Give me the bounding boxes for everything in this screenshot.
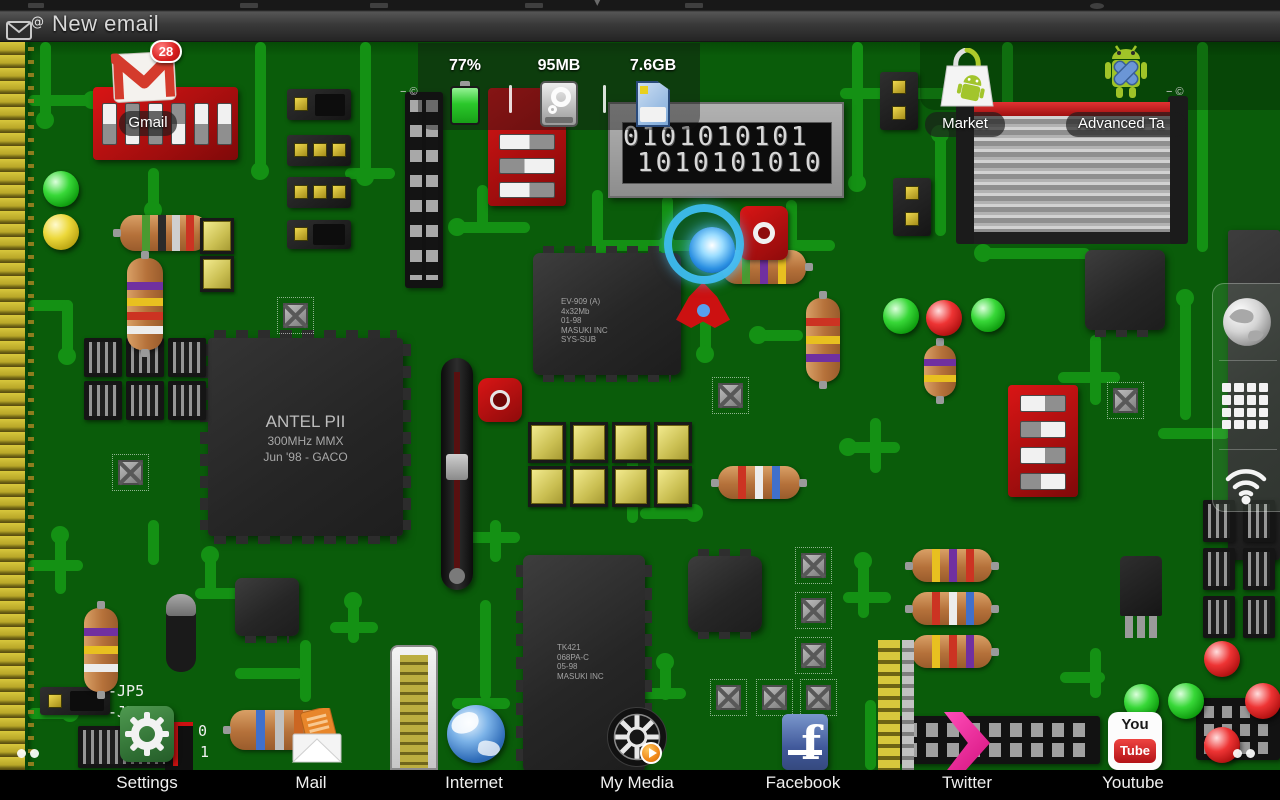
dock-label-youtube[interactable]: Youtube [1063,773,1203,793]
app-grid-cell [1234,420,1243,429]
app-drawer-icon[interactable] [1222,383,1268,429]
gmail-label: Gmail [119,111,177,136]
quick-launch-sidebar [1212,283,1280,512]
facebook-bar [788,750,822,755]
battery-icon [450,81,480,125]
page-indicator-dot [1233,749,1242,758]
dock-label-my-media[interactable]: My Media [567,773,707,793]
media-play-badge [640,742,662,764]
dock-icon-settings[interactable] [120,706,174,762]
app-grid-cell [1222,395,1231,404]
app-grid-cell [1259,420,1268,429]
app-grid-cell [1259,408,1268,417]
dock-label-twitter[interactable]: Twitter [897,773,1037,793]
storage-value: 7.6GB [606,57,700,75]
app-grid-cell [1222,408,1231,417]
settings-gear-icon [125,711,169,757]
sd-card-icon [636,81,670,127]
page-indicator-dot [30,749,39,758]
youtube-you-text: You [1108,716,1162,733]
hard-drive-icon [540,81,578,127]
app-grid-cell [1247,408,1256,417]
app-grid-cell [1247,383,1256,392]
app-grid-cell [1234,395,1243,404]
dock-label-settings[interactable]: Settings [77,773,217,793]
gmail-unread-badge: 28 [150,40,182,63]
app-grid-cell [1247,420,1256,429]
app-grid-cell [1234,383,1243,392]
memory-cell: 95MB [512,43,606,130]
system-monitor-widget[interactable]: 77% 95MB 7.6GB [418,43,700,130]
battery-percent: 77% [418,57,512,75]
memory-value: 95MB [512,57,606,75]
facebook-f-letter: f [801,716,821,770]
dock-icon-mail[interactable] [285,708,349,766]
android-home-screen: ANTEL PII 300MHz MMX Jun '98 - GACO EV-9… [0,0,1280,800]
dock-label-internet[interactable]: Internet [404,773,544,793]
wifi-icon[interactable] [1222,464,1270,506]
app-grid-cell [1247,395,1256,404]
dock-icon-twitter-arrow[interactable] [944,712,990,774]
dock-label-facebook[interactable]: Facebook [733,773,873,793]
market-icon [938,48,996,110]
dock-icon-internet[interactable] [447,705,505,763]
app-grid-cell [1259,395,1268,404]
app-grid-cell [1222,420,1231,429]
app-grid-cell [1222,383,1231,392]
sidebar-divider [1219,360,1277,361]
market-label: Market [925,112,1005,137]
advanced-task-label: Advanced Ta [1066,112,1186,137]
app-grid-cell [1234,408,1243,417]
page-indicator-dot [1246,749,1255,758]
youtube-tube-text: Tube [1114,739,1156,763]
dock-label-mail[interactable]: Mail [241,773,381,793]
sidebar-divider [1219,449,1277,450]
app-grid-cell [1259,383,1268,392]
dock-icon-facebook[interactable]: f [782,714,828,770]
page-indicator-dot [17,749,26,758]
browser-globe-icon[interactable] [1221,296,1273,348]
storage-cell: 7.6GB [606,43,700,130]
dock-bar: Settings Mail Internet My Media Facebook… [0,770,1280,800]
dock-icon-youtube[interactable]: You Tube [1108,712,1162,770]
battery-cell: 77% [418,43,512,130]
advanced-task-icon [1098,42,1154,106]
